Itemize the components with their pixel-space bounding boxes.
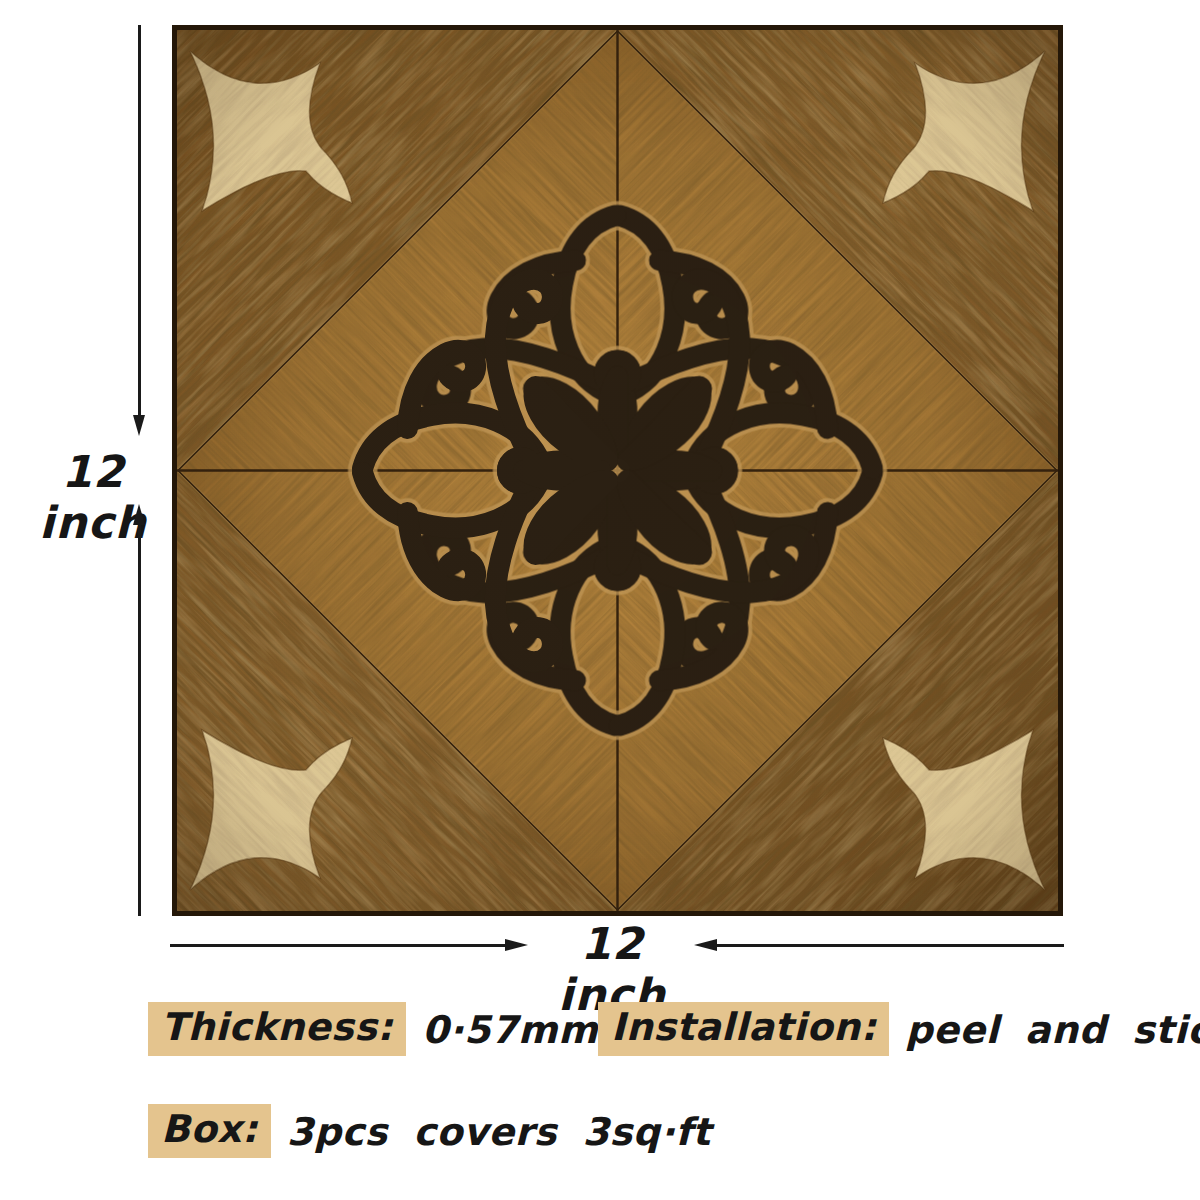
spec-box: Box: 3pcs covers 3sq·ft bbox=[148, 1104, 711, 1158]
product-spec-image: 12 inch 12 inch Thickness: 0·57mm Instal… bbox=[0, 0, 1200, 1200]
arrow-left-icon bbox=[694, 939, 717, 951]
tile-image bbox=[172, 25, 1063, 916]
arrow-right-icon bbox=[505, 939, 528, 951]
width-line-right-segment bbox=[717, 944, 1064, 948]
spec-thickness-label: Thickness: bbox=[148, 1002, 406, 1056]
spec-installation-label: Installation: bbox=[598, 1002, 889, 1056]
spec-thickness: Thickness: 0·57mm bbox=[148, 1002, 598, 1056]
height-dimension-label: 12 inch bbox=[18, 446, 168, 548]
spec-thickness-value: 0·57mm bbox=[422, 1006, 598, 1052]
height-line-bottom-segment bbox=[138, 525, 142, 916]
width-line-left-segment bbox=[170, 944, 505, 948]
wood-tile-svg bbox=[172, 25, 1063, 916]
spec-installation-value: peel and stick bbox=[905, 1006, 1200, 1052]
spec-box-label: Box: bbox=[148, 1104, 271, 1158]
arrow-down-icon bbox=[133, 415, 145, 436]
height-line-top-segment bbox=[138, 25, 142, 415]
arrow-up-icon bbox=[133, 504, 145, 525]
spec-box-value: 3pcs covers 3sq·ft bbox=[287, 1108, 711, 1154]
spec-installation: Installation: peel and stick bbox=[598, 1002, 1200, 1056]
vignette bbox=[172, 25, 1063, 916]
